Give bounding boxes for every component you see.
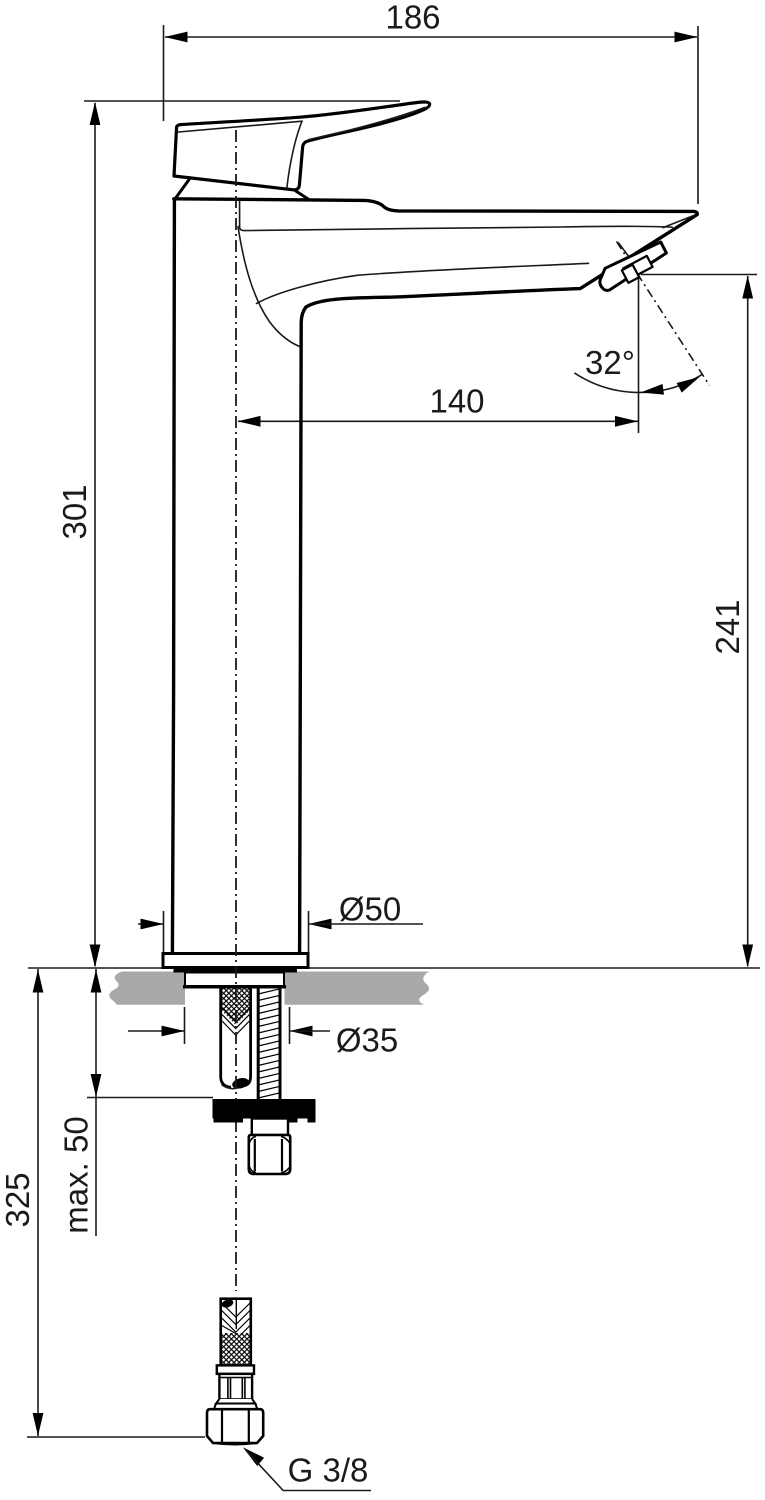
svg-text:Ø35: Ø35 [336, 1022, 398, 1059]
svg-text:max. 50: max. 50 [58, 1116, 95, 1233]
svg-text:140: 140 [429, 383, 484, 420]
svg-text:32°: 32° [585, 344, 635, 381]
svg-text:Ø50: Ø50 [339, 891, 401, 928]
svg-text:325: 325 [0, 1172, 36, 1227]
svg-text:301: 301 [56, 484, 93, 539]
svg-text:241: 241 [709, 599, 746, 654]
svg-text:G 3/8: G 3/8 [288, 1452, 369, 1489]
svg-text:186: 186 [385, 0, 440, 36]
